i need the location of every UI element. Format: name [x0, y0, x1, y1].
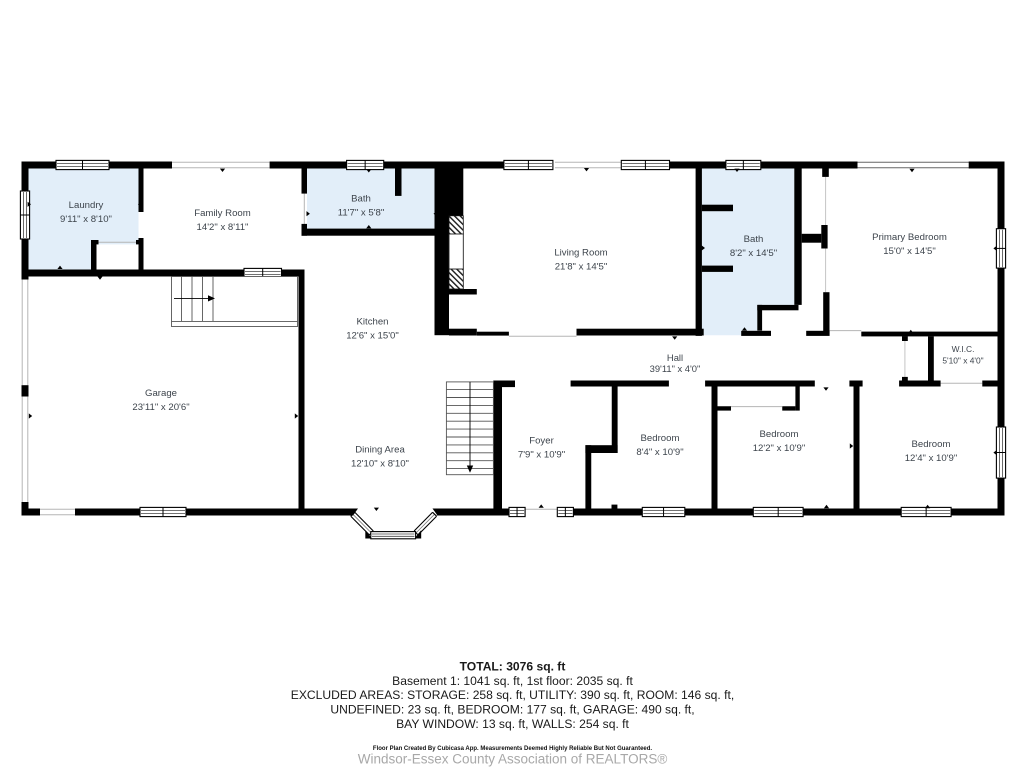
- svg-text:12'10" x 8'10": 12'10" x 8'10": [351, 459, 409, 470]
- svg-text:Kitchen: Kitchen: [357, 317, 389, 328]
- svg-text:Bedroom: Bedroom: [912, 439, 951, 450]
- svg-text:12'4" x 10'9": 12'4" x 10'9": [905, 453, 958, 464]
- svg-text:Living Room: Living Room: [554, 248, 607, 259]
- svg-text:Primary Bedroom: Primary Bedroom: [872, 232, 947, 243]
- svg-text:5'10" x 4'0": 5'10" x 4'0": [942, 356, 983, 366]
- svg-text:Dining Area: Dining Area: [355, 445, 405, 456]
- svg-text:UNDEFINED: 23 sq. ft, BEDROOM:: UNDEFINED: 23 sq. ft, BEDROOM: 177 sq. f…: [330, 703, 694, 717]
- svg-text:Bedroom: Bedroom: [641, 433, 680, 444]
- svg-text:7'9" x 10'9": 7'9" x 10'9": [518, 450, 565, 461]
- svg-text:Bath: Bath: [744, 234, 764, 245]
- svg-text:Bedroom: Bedroom: [760, 429, 799, 440]
- svg-text:Windsor-Essex County Associati: Windsor-Essex County Association of REAL…: [358, 751, 668, 766]
- svg-text:12'6" x 15'0": 12'6" x 15'0": [346, 331, 399, 342]
- svg-text:15'0" x 14'5": 15'0" x 14'5": [883, 246, 936, 257]
- svg-text:Garage: Garage: [145, 388, 177, 399]
- svg-text:Family Room: Family Room: [194, 208, 251, 219]
- svg-text:W.I.C.: W.I.C.: [952, 344, 975, 354]
- svg-text:8'4" x 10'9": 8'4" x 10'9": [636, 447, 683, 458]
- svg-text:8'2" x 14'5": 8'2" x 14'5": [730, 248, 777, 259]
- svg-text:12'2" x 10'9": 12'2" x 10'9": [753, 443, 806, 454]
- svg-text:Foyer: Foyer: [529, 436, 554, 447]
- svg-text:23'11" x 20'6": 23'11" x 20'6": [132, 402, 189, 413]
- svg-text:9'11" x 8'10": 9'11" x 8'10": [60, 214, 112, 225]
- svg-text:Bath: Bath: [351, 194, 371, 205]
- svg-text:39'11" x 4'0": 39'11" x 4'0": [650, 363, 701, 374]
- svg-text:EXCLUDED AREAS: STORAGE: 258 s: EXCLUDED AREAS: STORAGE: 258 sq. ft, UTI…: [291, 688, 734, 702]
- svg-text:14'2" x 8'11": 14'2" x 8'11": [197, 222, 249, 233]
- svg-text:Hall: Hall: [667, 352, 683, 363]
- svg-text:BAY WINDOW: 13 sq. ft, WALLS:: BAY WINDOW: 13 sq. ft, WALLS: 254 sq. ft: [396, 717, 629, 731]
- svg-text:21'8" x 14'5": 21'8" x 14'5": [555, 262, 608, 273]
- svg-text:Laundry: Laundry: [69, 200, 104, 211]
- svg-text:11'7" x 5'8": 11'7" x 5'8": [338, 208, 385, 219]
- svg-text:TOTAL: 3076 sq. ft: TOTAL: 3076 sq. ft: [460, 660, 566, 674]
- svg-text:Basement 1: 1041 sq. ft, 1st f: Basement 1: 1041 sq. ft, 1st floor: 2035…: [392, 674, 633, 688]
